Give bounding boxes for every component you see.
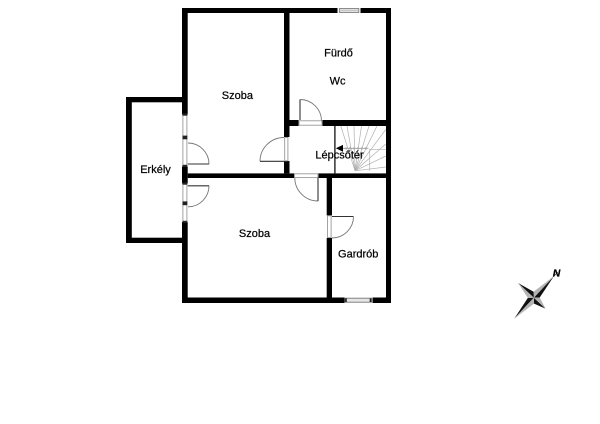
svg-text:Szoba: Szoba xyxy=(239,228,271,240)
svg-text:Erkély: Erkély xyxy=(140,164,171,176)
svg-text:Wc: Wc xyxy=(330,75,346,87)
svg-text:Lépcsőtér: Lépcsőtér xyxy=(315,150,364,162)
svg-text:Fürdő: Fürdő xyxy=(324,47,353,59)
svg-text:N: N xyxy=(553,268,561,280)
svg-text:Gardrób: Gardrób xyxy=(338,249,378,261)
svg-text:Szoba: Szoba xyxy=(222,90,254,102)
